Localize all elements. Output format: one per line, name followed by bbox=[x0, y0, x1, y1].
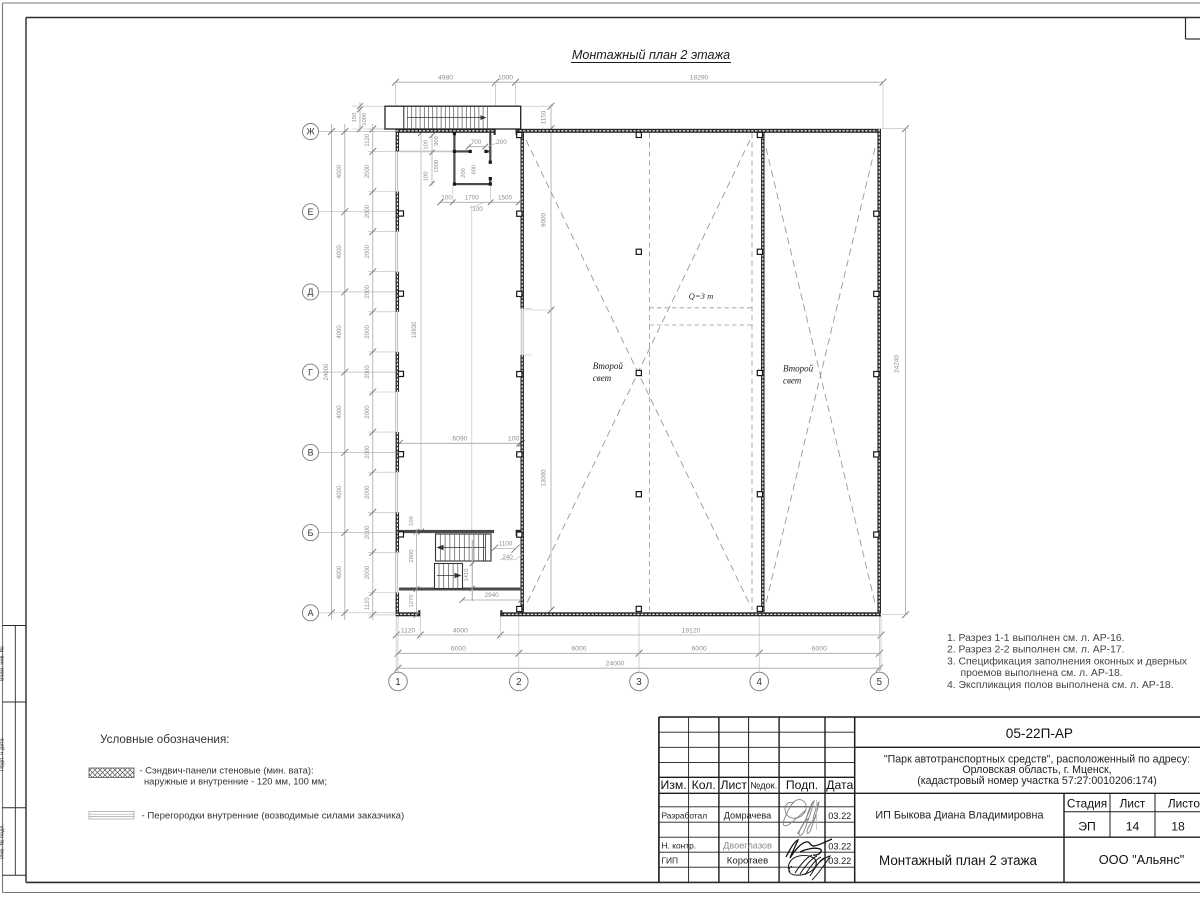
svg-text:- Перегородки внутренние (возв: - Перегородки внутренние (возводимые сил… bbox=[142, 811, 405, 822]
svg-text:1500: 1500 bbox=[498, 194, 513, 201]
svg-text:19830: 19830 bbox=[412, 321, 418, 338]
svg-text:24000: 24000 bbox=[606, 661, 625, 668]
svg-text:03.22: 03.22 bbox=[828, 841, 851, 851]
svg-text:3: 3 bbox=[636, 677, 642, 688]
svg-text:Двоеглазов: Двоеглазов bbox=[723, 841, 772, 851]
svg-text:Разработал: Разработал bbox=[662, 810, 708, 820]
svg-text:Взам. инв. №: Взам. инв. № bbox=[0, 646, 6, 681]
svg-text:03.22: 03.22 bbox=[828, 811, 851, 821]
svg-text:1120: 1120 bbox=[365, 597, 371, 611]
svg-text:Лист: Лист bbox=[720, 778, 747, 792]
svg-text:1270: 1270 bbox=[409, 595, 415, 608]
svg-text:наружные и внутренние - 120 мм: наружные и внутренние - 120 мм, 100 мм; bbox=[144, 776, 327, 787]
svg-text:4000: 4000 bbox=[337, 164, 343, 178]
svg-text:2000: 2000 bbox=[365, 445, 371, 459]
svg-text:6000: 6000 bbox=[571, 646, 586, 653]
svg-text:2000: 2000 bbox=[365, 565, 371, 579]
svg-text:4000: 4000 bbox=[453, 627, 468, 634]
svg-text:2000: 2000 bbox=[365, 164, 371, 178]
svg-text:6000: 6000 bbox=[812, 646, 827, 653]
svg-text:свет: свет bbox=[593, 373, 612, 383]
svg-text:ЭП: ЭП bbox=[1078, 820, 1096, 834]
svg-text:Подп.: Подп. bbox=[786, 778, 818, 792]
svg-text:Кол.: Кол. bbox=[692, 778, 716, 792]
svg-text:В: В bbox=[308, 448, 314, 458]
svg-text:18290: 18290 bbox=[690, 74, 709, 81]
svg-text:2000: 2000 bbox=[365, 485, 371, 499]
svg-text:2. Разрез 2-2 выполнен см. л.: 2. Разрез 2-2 выполнен см. л. АР-17. bbox=[947, 645, 1125, 656]
svg-text:1000: 1000 bbox=[362, 113, 368, 126]
svg-text:3. Спецификация заполнения око: 3. Спецификация заполнения оконных и две… bbox=[947, 655, 1188, 667]
svg-text:1. Разрез 1-1 выполнен см. л.: 1. Разрез 1-1 выполнен см. л. АР-16. bbox=[947, 633, 1125, 644]
svg-text:проемов выполнена см. л. АР-18: проемов выполнена см. л. АР-18. bbox=[961, 668, 1123, 679]
svg-text:100: 100 bbox=[409, 516, 415, 526]
svg-text:2000: 2000 bbox=[365, 244, 371, 258]
svg-text:Листов: Листов bbox=[1168, 796, 1200, 810]
svg-text:А: А bbox=[308, 608, 314, 618]
svg-text:1700: 1700 bbox=[465, 194, 480, 201]
svg-text:1120: 1120 bbox=[365, 133, 371, 147]
svg-text:1100: 1100 bbox=[499, 540, 513, 547]
svg-text:800: 800 bbox=[472, 165, 478, 175]
svg-text:свет: свет bbox=[783, 375, 802, 385]
svg-text:2000: 2000 bbox=[365, 325, 371, 339]
svg-text:Ж: Ж bbox=[306, 127, 314, 137]
svg-text:100: 100 bbox=[424, 140, 430, 150]
svg-text:4000: 4000 bbox=[337, 405, 343, 419]
svg-text:Подп. и дата: Подп. и дата bbox=[0, 737, 6, 771]
svg-text:Второй: Второй bbox=[593, 361, 624, 371]
svg-text:100: 100 bbox=[508, 435, 520, 442]
svg-text:700: 700 bbox=[471, 139, 482, 146]
svg-text:2: 2 bbox=[516, 677, 521, 688]
svg-text:5: 5 bbox=[877, 677, 883, 688]
svg-text:900: 900 bbox=[434, 136, 440, 146]
svg-text:6000: 6000 bbox=[692, 646, 707, 653]
svg-text:18: 18 bbox=[1171, 820, 1185, 834]
svg-text:2000: 2000 bbox=[365, 365, 371, 379]
svg-text:1150: 1150 bbox=[541, 110, 548, 124]
svg-text:19120: 19120 bbox=[682, 627, 701, 634]
svg-text:ООО "Альянс": ООО "Альянс" bbox=[1099, 852, 1185, 867]
svg-text:1000: 1000 bbox=[498, 74, 513, 81]
svg-text:100: 100 bbox=[472, 206, 483, 213]
svg-text:2000: 2000 bbox=[365, 525, 371, 539]
svg-text:Q=3 m: Q=3 m bbox=[689, 291, 714, 301]
svg-text:200: 200 bbox=[461, 168, 467, 178]
svg-text:2940: 2940 bbox=[485, 592, 500, 599]
svg-text:№док.: №док. bbox=[750, 780, 777, 790]
svg-text:Коротаев: Коротаев bbox=[727, 855, 768, 866]
svg-text:Монтажный план 2 этажа: Монтажный план 2 этажа bbox=[572, 48, 730, 62]
svg-text:ГИП: ГИП bbox=[662, 855, 679, 865]
svg-text:9000: 9000 bbox=[541, 213, 548, 227]
svg-text:1410: 1410 bbox=[464, 569, 470, 582]
svg-text:14: 14 bbox=[1126, 820, 1140, 834]
svg-text:2000: 2000 bbox=[365, 405, 371, 419]
svg-text:200: 200 bbox=[496, 139, 507, 146]
svg-text:4000: 4000 bbox=[337, 565, 343, 579]
svg-text:6000: 6000 bbox=[451, 646, 466, 653]
svg-text:Д: Д bbox=[308, 287, 314, 297]
svg-text:1500: 1500 bbox=[434, 160, 440, 173]
svg-text:24240: 24240 bbox=[894, 355, 901, 373]
svg-text:Дата: Дата bbox=[826, 778, 853, 792]
svg-text:100: 100 bbox=[424, 172, 430, 182]
svg-text:- Сэндвич-панели стеновые (мин: - Сэндвич-панели стеновые (мин. вата): bbox=[140, 765, 314, 776]
svg-text:4000: 4000 bbox=[337, 325, 343, 339]
svg-text:03.22: 03.22 bbox=[828, 856, 851, 866]
svg-text:Домрачева: Домрачева bbox=[724, 810, 772, 820]
svg-text:24000: 24000 bbox=[324, 363, 330, 380]
svg-text:6090: 6090 bbox=[452, 435, 467, 442]
svg-text:Монтажный план 2 этажа: Монтажный план 2 этажа bbox=[879, 853, 1037, 868]
svg-text:Стадия: Стадия bbox=[1067, 796, 1107, 810]
svg-text:Е: Е bbox=[308, 207, 314, 217]
svg-text:4000: 4000 bbox=[337, 244, 343, 258]
svg-text:05-22П-АР: 05-22П-АР bbox=[1006, 726, 1073, 741]
svg-text:Инв. № подл.: Инв. № подл. bbox=[0, 824, 6, 859]
svg-text:4980: 4980 bbox=[438, 74, 453, 81]
svg-text:(кадастровый номер участка 57:: (кадастровый номер участка 57:27:0010206… bbox=[917, 775, 1157, 787]
svg-text:Второй: Второй bbox=[783, 364, 814, 374]
svg-text:Лист: Лист bbox=[1120, 796, 1146, 810]
svg-text:1120: 1120 bbox=[401, 627, 416, 634]
svg-text:13000: 13000 bbox=[541, 469, 548, 487]
svg-text:150: 150 bbox=[352, 113, 358, 123]
svg-text:2000: 2000 bbox=[365, 284, 371, 298]
svg-text:Н. контр.: Н. контр. bbox=[662, 841, 697, 851]
svg-text:2800: 2800 bbox=[409, 550, 415, 563]
svg-text:100: 100 bbox=[441, 194, 452, 201]
svg-text:4000: 4000 bbox=[337, 485, 343, 499]
svg-text:Б: Б bbox=[308, 528, 314, 538]
svg-text:4: 4 bbox=[756, 677, 762, 688]
svg-text:2000: 2000 bbox=[365, 204, 371, 218]
svg-text:4. Экспликация полов выполнена: 4. Экспликация полов выполнена см. л. АР… bbox=[947, 680, 1174, 691]
svg-text:Изм.: Изм. bbox=[661, 778, 687, 792]
svg-text:Г: Г bbox=[308, 367, 313, 377]
svg-text:1: 1 bbox=[395, 677, 400, 688]
svg-text:Условные обозначения:: Условные обозначения: bbox=[100, 733, 230, 746]
svg-text:ИП Быкова Диана Владимировна: ИП Быкова Диана Владимировна bbox=[875, 810, 1043, 822]
